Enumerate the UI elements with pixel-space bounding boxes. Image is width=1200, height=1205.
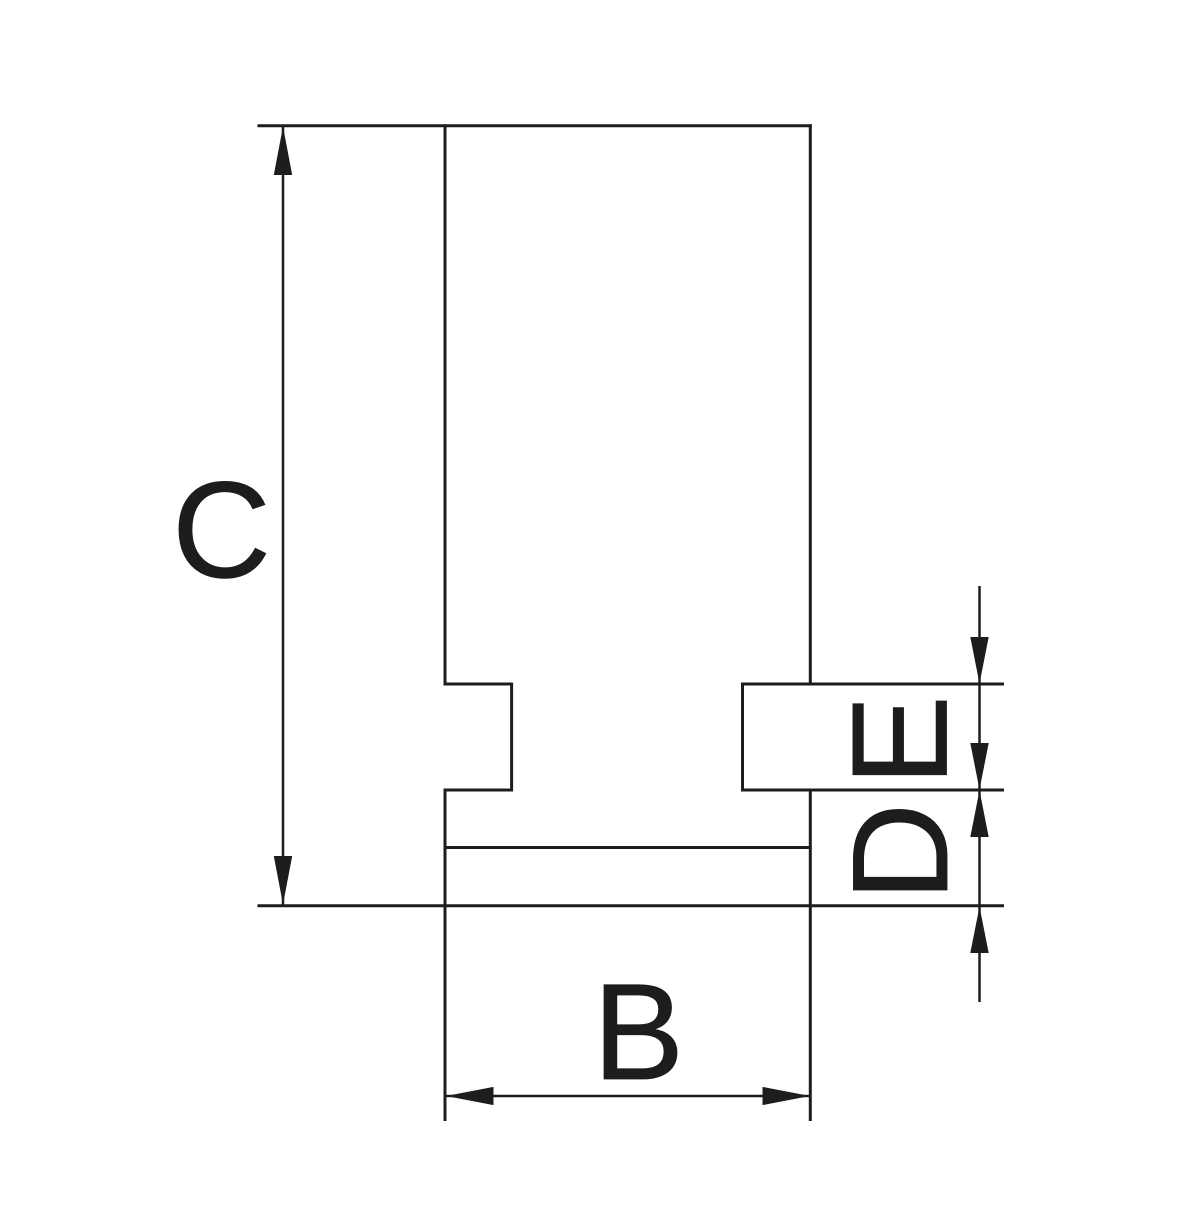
svg-text:D: D: [824, 803, 976, 901]
svg-text:B: B: [593, 956, 684, 1109]
svg-text:C: C: [172, 454, 271, 607]
svg-text:E: E: [824, 695, 976, 786]
